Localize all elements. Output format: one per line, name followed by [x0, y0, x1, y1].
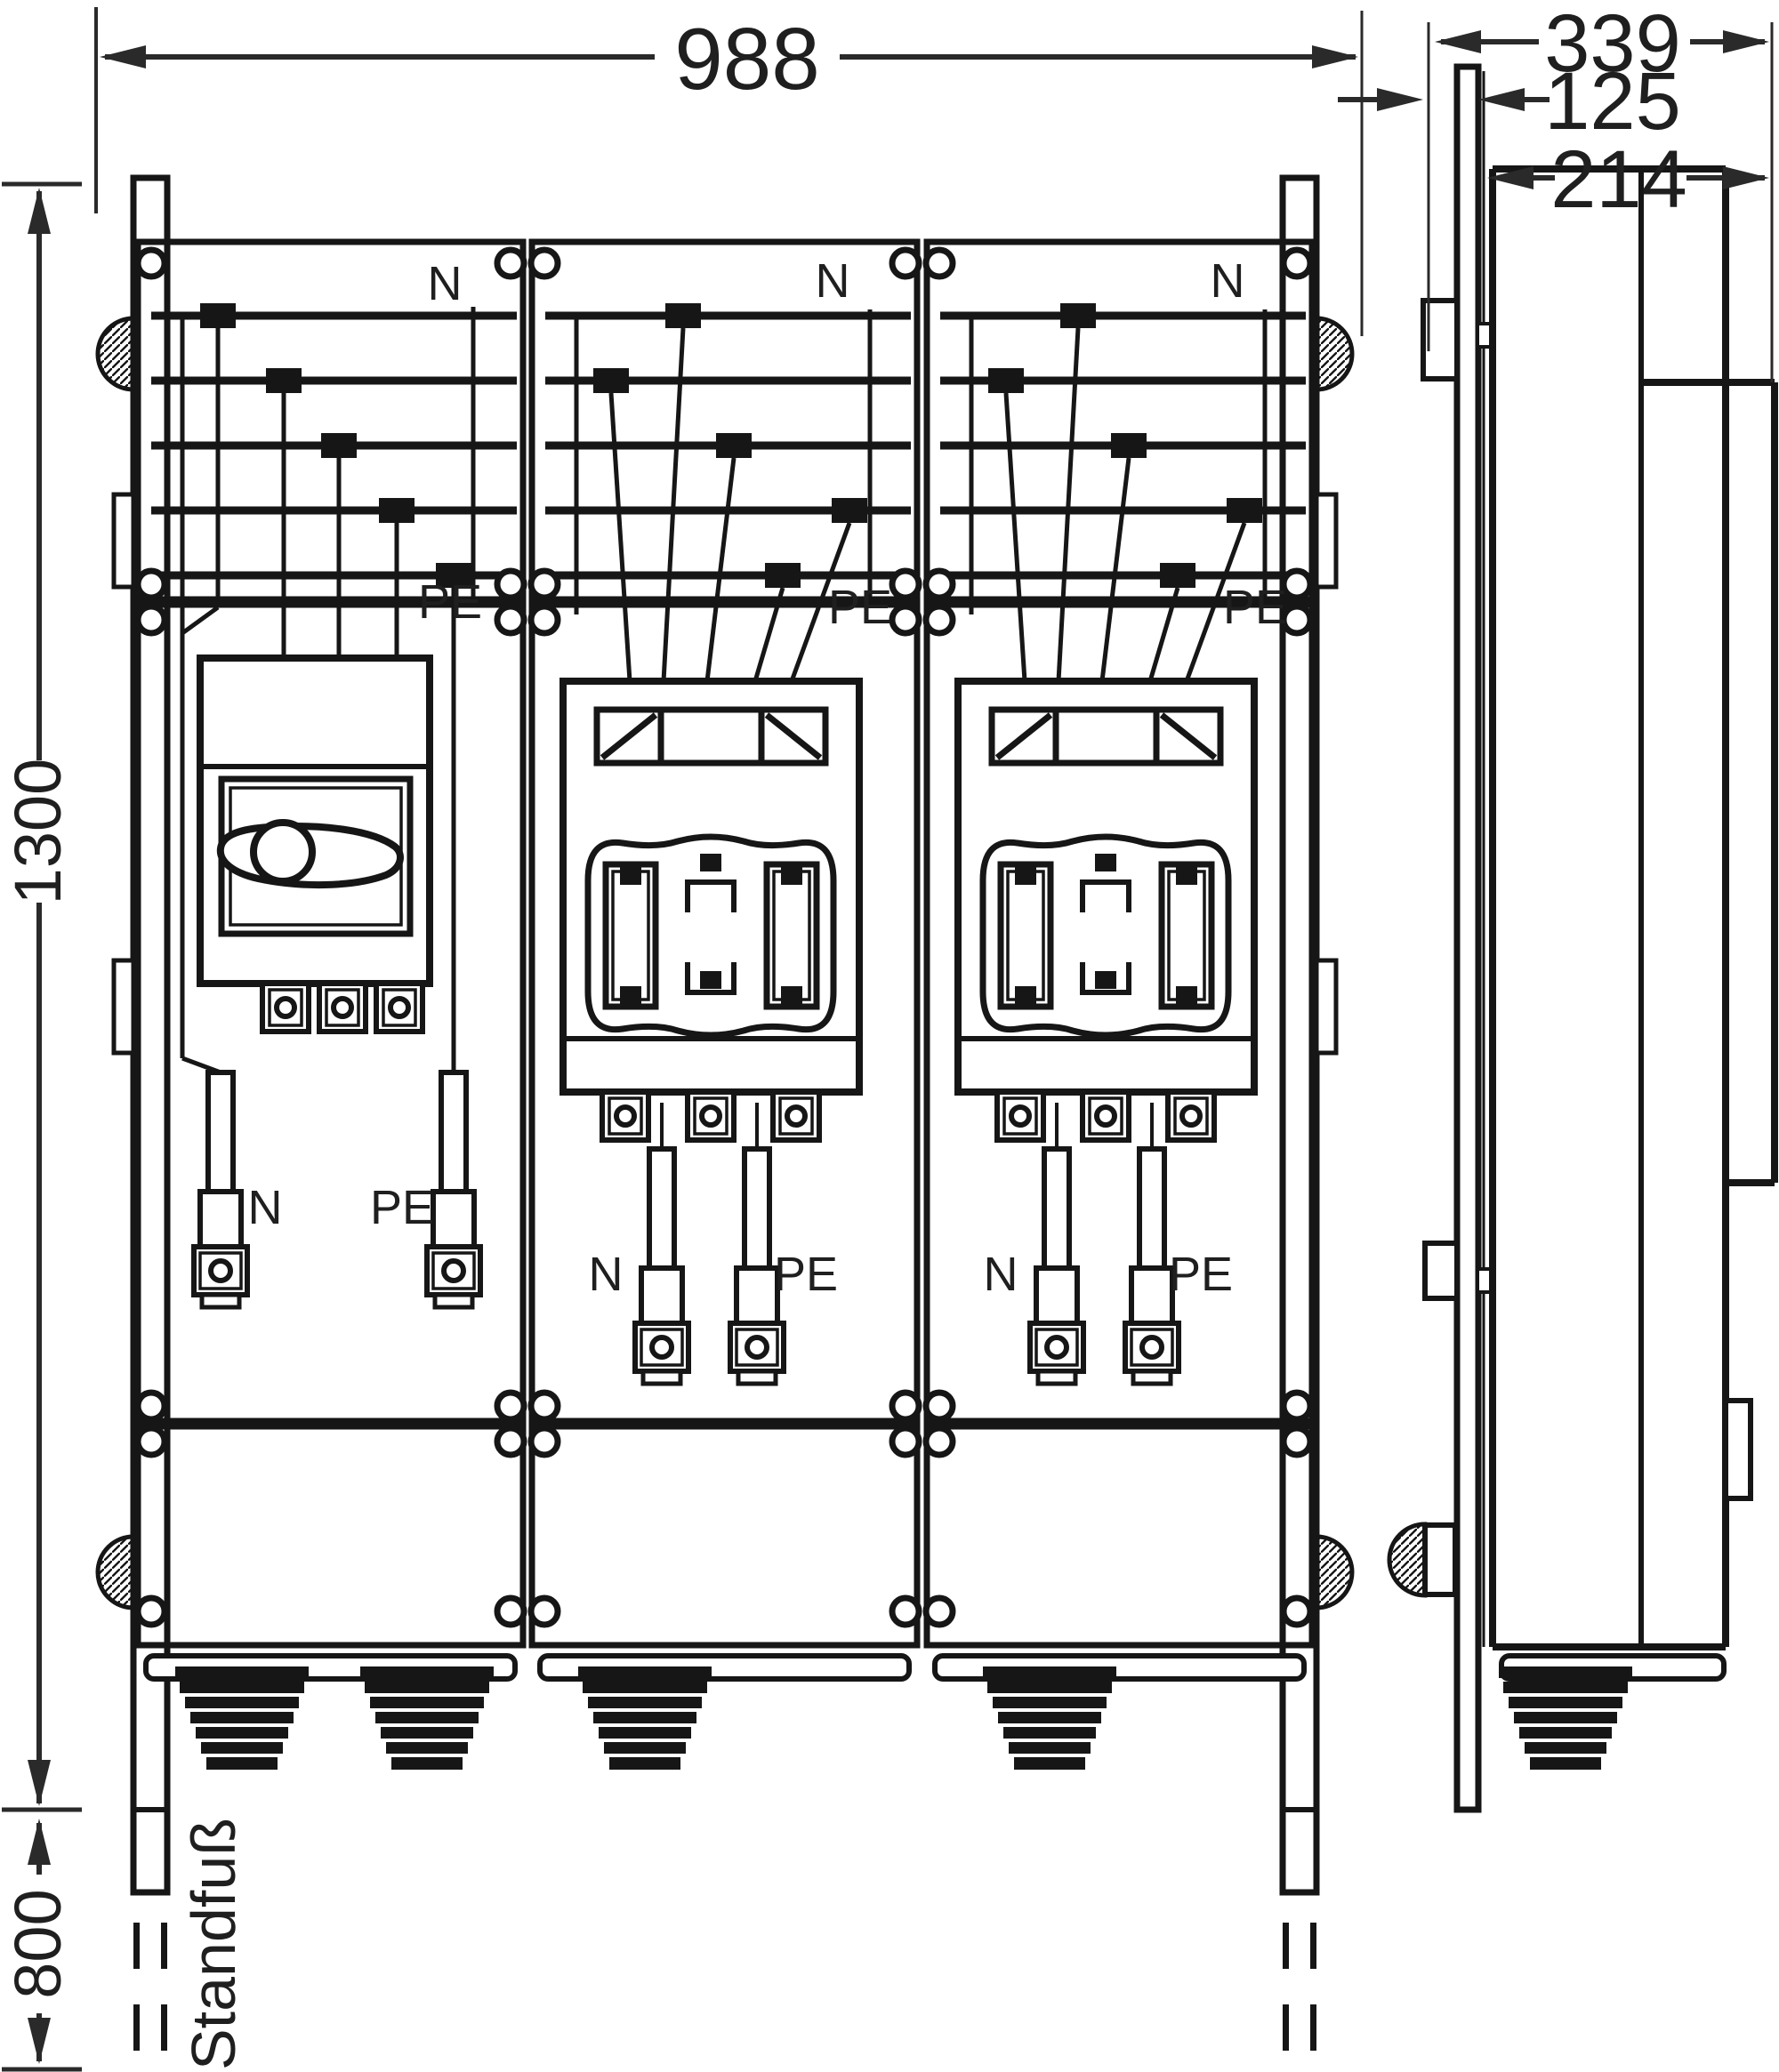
- hinge-knob: [1316, 318, 1352, 390]
- side-view: [1389, 67, 1775, 1810]
- cable-gland: [983, 1666, 1116, 1770]
- cable-gland: [360, 1666, 494, 1770]
- drawing-page: N PE N PE N PE N PE N PE N PE: [0, 0, 1779, 2072]
- busbar-pe-label-panel-2: PE: [828, 581, 892, 634]
- outlet-pe-label-panel-2: PE: [774, 1248, 838, 1301]
- outlet-n-label-panel-1: N: [248, 1181, 283, 1234]
- outlet-pe-label-panel-3: PE: [1169, 1248, 1233, 1301]
- rail-clip: [1425, 1243, 1457, 1298]
- gland-flanges: [146, 1656, 1304, 1679]
- busbar-pe-label-panel-1: PE: [418, 575, 482, 629]
- dim-text-stand-height: 800: [1, 1889, 75, 1998]
- cable-glands: [175, 1666, 1116, 1770]
- dim-mounting-depth: 125: [1338, 56, 1681, 147]
- front-view: N PE N PE N PE N PE N PE N PE: [98, 178, 1352, 2072]
- cable-gland: [175, 1666, 309, 1770]
- wall-rail-side: [1457, 67, 1478, 1810]
- stand-label: Standfuß: [179, 1818, 248, 2070]
- hinge-knob: [1316, 1537, 1352, 1608]
- busbar-n-label-panel-3: N: [1211, 254, 1245, 308]
- busbar-n-label-panel-1: N: [428, 257, 463, 310]
- dim-text-overall-width: 988: [674, 10, 820, 108]
- busbar-n-label-panel-2: N: [816, 254, 850, 308]
- outlet-pe-label-panel-1: PE: [370, 1181, 434, 1234]
- dim-enclosure-height: 1300: [1, 184, 82, 1810]
- hinge-knob: [98, 1537, 133, 1608]
- dim-text-mounting-depth: 125: [1544, 56, 1681, 147]
- dim-text-body-depth: 214: [1550, 134, 1687, 225]
- dim-stand-height: 800: [1, 1819, 82, 2069]
- rail-clip: [1425, 1525, 1455, 1594]
- dim-text-enclosure-height: 1300: [1, 759, 75, 905]
- hinge-knob: [98, 318, 133, 390]
- outlet-n-label-panel-3: N: [984, 1248, 1018, 1301]
- side-body: [1493, 169, 1775, 1647]
- outlet-n-label-panel-2: N: [589, 1248, 624, 1301]
- cable-gland: [578, 1666, 712, 1770]
- cable-gland-side: [1499, 1666, 1632, 1770]
- busbar-pe-label-panel-3: PE: [1223, 581, 1287, 634]
- hinge-knob-side: [1389, 1524, 1425, 1595]
- technical-drawing: N PE N PE N PE N PE N PE N PE: [0, 0, 1779, 2072]
